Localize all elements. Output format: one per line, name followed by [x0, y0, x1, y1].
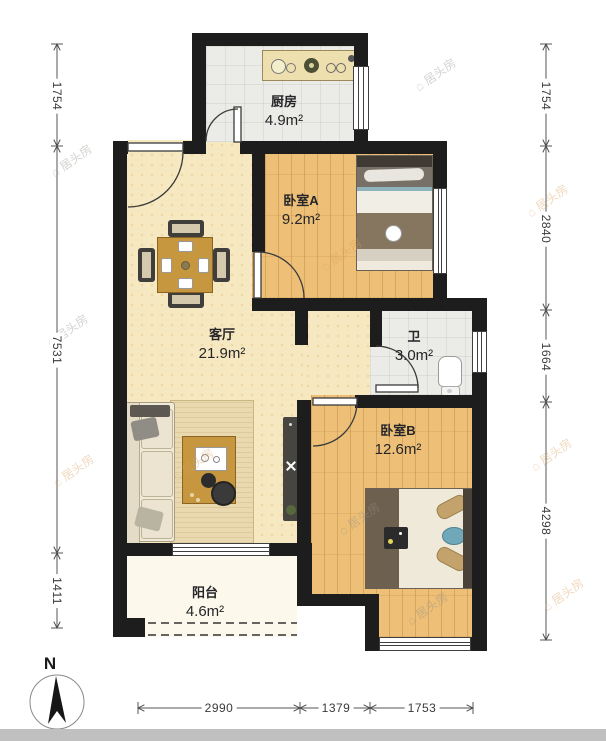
dining-chair	[138, 248, 155, 282]
bedroom-b-window	[379, 637, 471, 651]
bedroom-a-bed	[356, 155, 433, 271]
burner-center	[309, 63, 314, 68]
wall	[192, 33, 368, 46]
tray	[195, 447, 227, 471]
compass-icon	[30, 675, 84, 729]
chair-cushion	[172, 295, 200, 304]
room-label-bath: 卫 3.0m²	[395, 329, 433, 365]
place-setting	[178, 278, 193, 289]
wall	[370, 311, 382, 347]
wall	[240, 141, 447, 154]
chair-cushion	[217, 252, 226, 278]
room-name: 卧室B	[375, 423, 422, 440]
decor-dot	[196, 498, 200, 502]
hob-ring-icon	[326, 63, 336, 73]
console-dot	[289, 423, 292, 426]
plan-cutout	[311, 604, 365, 651]
bed-tablet	[384, 527, 408, 549]
dim-label: 1664	[539, 340, 553, 375]
kitchen-counter	[262, 50, 359, 81]
dim-label: 1379	[319, 701, 354, 715]
tray-cup	[213, 456, 220, 463]
bed-duvet	[357, 213, 432, 249]
room-name: 卧室A	[282, 193, 320, 210]
stove-burner-icon	[304, 58, 319, 73]
sink-small-icon	[286, 63, 296, 73]
hob-ring-icon	[336, 63, 346, 73]
dim-label: 2990	[202, 701, 237, 715]
bathroom-window	[472, 331, 487, 373]
room-area: 4.9m²	[265, 111, 303, 131]
table-centerpiece	[181, 261, 190, 270]
dim-label: 2840	[539, 212, 553, 247]
tablet-dot	[388, 539, 393, 544]
bed-headboard	[357, 156, 432, 167]
plant-icon	[286, 505, 296, 515]
place-setting	[198, 258, 209, 273]
wall	[113, 141, 127, 560]
bed-foot-band	[357, 249, 432, 261]
watermark: 居头房	[411, 54, 459, 95]
room-area: 21.9m²	[199, 344, 246, 364]
dim-label: 4298	[539, 504, 553, 539]
compass-north-label: N	[44, 654, 56, 674]
bed-sheet	[357, 191, 432, 213]
pot-icon	[211, 481, 236, 506]
room-label-living: 客厅 21.9m²	[199, 327, 246, 363]
sink-icon	[271, 59, 286, 74]
toilet	[438, 356, 462, 398]
balcony-slider-window	[172, 543, 270, 556]
wall	[183, 141, 206, 154]
decor-dot	[190, 493, 194, 497]
dim-label: 1411	[50, 574, 64, 608]
room-area: 9.2m²	[282, 210, 320, 230]
watermark: 居头房	[49, 450, 97, 491]
room-label-kitchen: 厨房 4.9m²	[265, 94, 303, 130]
room-name: 阳台	[186, 585, 224, 602]
sofa	[125, 402, 175, 542]
chair-cushion	[142, 252, 151, 278]
watermark: 居头房	[47, 140, 95, 181]
sofa-throw	[130, 405, 170, 417]
hallway-floor	[303, 311, 370, 395]
room-label-bedroom-b: 卧室B 12.6m²	[375, 423, 422, 459]
dining-chair	[213, 248, 230, 282]
room-name: 厨房	[265, 94, 303, 111]
tray-cup	[201, 454, 209, 462]
wall	[295, 311, 308, 345]
wall	[127, 543, 172, 556]
room-label-balcony: 阳台 4.6m²	[186, 585, 224, 621]
wall	[252, 141, 265, 252]
bedroom-a-window	[433, 188, 447, 274]
dining-set	[138, 220, 230, 308]
bed-tray	[385, 225, 402, 242]
chair-cushion	[172, 224, 200, 233]
place-setting	[161, 258, 172, 273]
dim-label: 1753	[405, 701, 440, 715]
bottom-gray-bar	[0, 729, 606, 741]
wall	[113, 618, 145, 637]
wall	[113, 556, 127, 624]
wall	[252, 298, 487, 311]
watermark: 居头房	[539, 574, 587, 615]
bedroom-b-bed	[365, 488, 473, 589]
dim-label: 7531	[50, 333, 64, 368]
toilet-button	[447, 389, 452, 393]
wall	[192, 33, 206, 154]
toilet-bowl	[438, 356, 462, 387]
dining-table	[157, 237, 213, 293]
sofa-cushion	[141, 451, 173, 497]
room-name: 卫	[395, 329, 433, 346]
watermark: 居头房	[527, 434, 575, 475]
room-area: 3.0m²	[395, 346, 433, 366]
tablet-dot	[399, 532, 402, 535]
room-name: 客厅	[199, 327, 246, 344]
bed-pillow	[364, 168, 424, 182]
room-area: 12.6m²	[375, 440, 422, 460]
dim-label: 1754	[50, 79, 64, 114]
wall	[270, 543, 312, 556]
coffee-table	[182, 436, 236, 504]
wall	[355, 395, 487, 408]
floor-plan-canvas: 居头房 居头房 居头房 居头房 居头房 居头房 居头房 居头房 居头房 居头房 …	[0, 0, 606, 741]
wall	[297, 556, 312, 606]
bed-headboard	[463, 489, 472, 588]
dining-chair	[168, 220, 204, 237]
place-setting	[178, 241, 193, 252]
kitchen-window	[353, 66, 369, 130]
room-label-bedroom-a: 卧室A 9.2m²	[282, 193, 320, 229]
dim-label: 1754	[539, 79, 553, 114]
room-area: 4.6m²	[186, 602, 224, 622]
bed-foot-band	[357, 261, 432, 270]
